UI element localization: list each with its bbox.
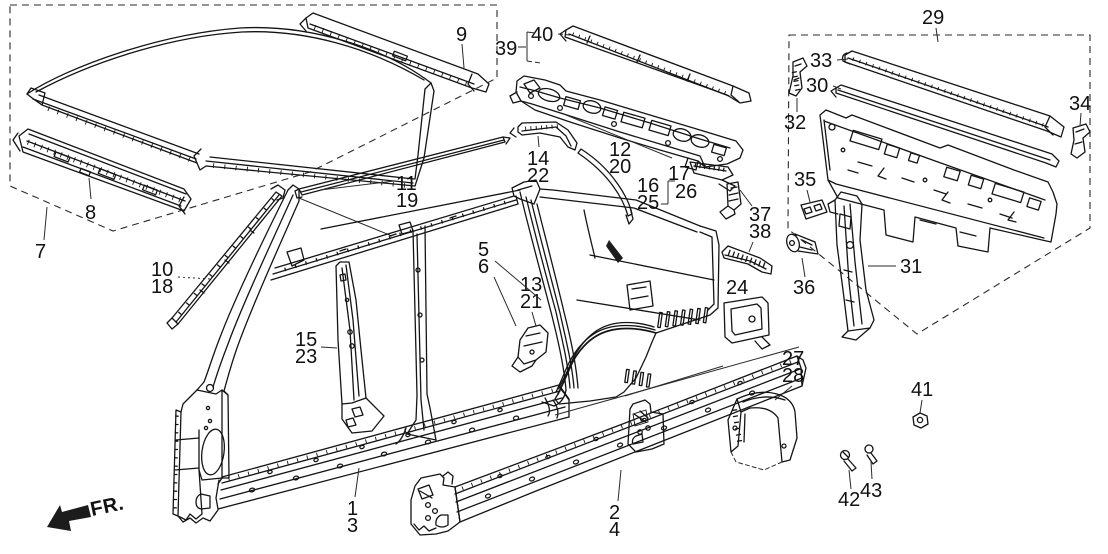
svg-text:7: 7 bbox=[35, 241, 46, 263]
svg-text:21: 21 bbox=[520, 291, 542, 313]
svg-text:35: 35 bbox=[794, 169, 816, 191]
svg-text:4: 4 bbox=[609, 519, 620, 541]
svg-text:36: 36 bbox=[793, 277, 815, 299]
svg-text:28: 28 bbox=[782, 365, 804, 387]
svg-text:6: 6 bbox=[478, 256, 489, 278]
svg-text:38: 38 bbox=[749, 221, 771, 243]
svg-text:20: 20 bbox=[609, 156, 631, 178]
svg-text:24: 24 bbox=[726, 277, 748, 299]
svg-text:42: 42 bbox=[838, 489, 860, 511]
svg-text:32: 32 bbox=[784, 112, 806, 134]
svg-text:33: 33 bbox=[810, 50, 832, 72]
svg-text:29: 29 bbox=[922, 7, 944, 29]
svg-text:31: 31 bbox=[900, 256, 922, 278]
svg-text:18: 18 bbox=[151, 276, 173, 298]
svg-text:19: 19 bbox=[396, 190, 418, 212]
svg-text:40: 40 bbox=[531, 24, 553, 46]
svg-text:39: 39 bbox=[495, 38, 517, 60]
svg-text:30: 30 bbox=[806, 75, 828, 97]
svg-text:41: 41 bbox=[911, 379, 933, 401]
svg-text:9: 9 bbox=[456, 24, 467, 46]
svg-text:3: 3 bbox=[347, 515, 358, 537]
svg-text:34: 34 bbox=[1069, 93, 1091, 115]
svg-text:23: 23 bbox=[295, 346, 317, 368]
svg-text:8: 8 bbox=[85, 202, 96, 224]
svg-text:26: 26 bbox=[675, 181, 697, 203]
svg-text:43: 43 bbox=[860, 480, 882, 502]
